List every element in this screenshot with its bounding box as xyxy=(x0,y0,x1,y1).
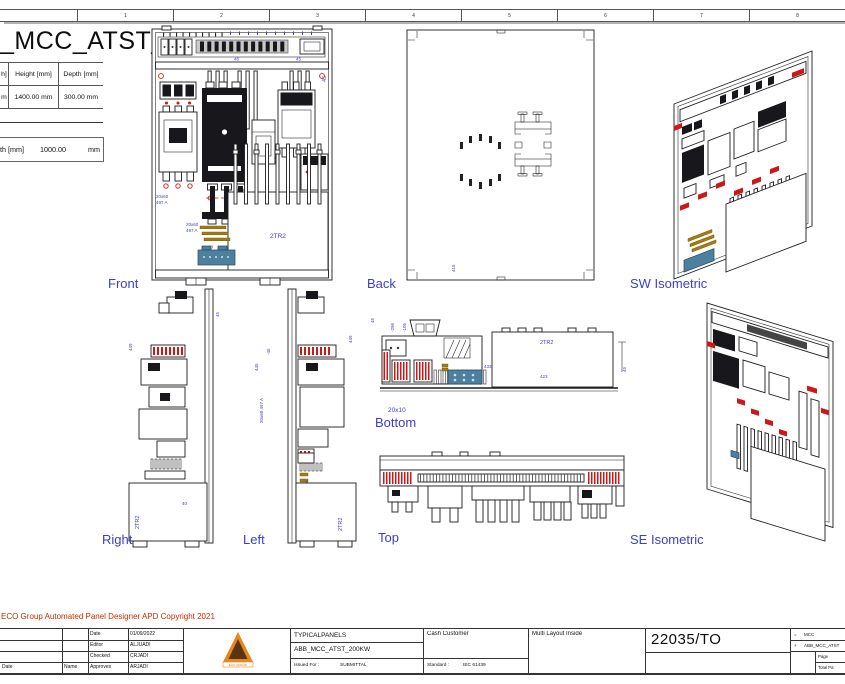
bottom-view-drawing: -296 -105 -274 -204 433 2TR2 423 xyxy=(372,312,644,427)
rev-name-header: Name xyxy=(64,662,86,673)
bottom-view-label: Bottom xyxy=(375,415,416,430)
svg-text:2TR2: 2TR2 xyxy=(270,233,286,240)
width-input-value[interactable]: 1000.00 xyxy=(38,145,80,154)
signoff-approved-value: ARJADI xyxy=(130,662,182,673)
signoff-approved-label: Approves xyxy=(90,662,126,673)
circuit-breaker xyxy=(159,106,197,188)
page-label: Page xyxy=(818,651,845,662)
svg-text:415: 415 xyxy=(451,264,456,272)
ruler-shadow xyxy=(4,22,845,24)
layout-note: Multi Layout Inside xyxy=(532,631,642,637)
ruler-cell: 3 xyxy=(270,10,366,21)
se-isometric-label: SE Isometric xyxy=(630,532,704,547)
right-cabinet-box xyxy=(129,483,207,541)
bottom-view-sublabel: 20x10 xyxy=(388,407,406,414)
svg-text:45: 45 xyxy=(215,311,220,317)
sheet-ruler: 1 2 3 4 5 6 7 8 xyxy=(0,9,845,22)
ruler-cell: 2 xyxy=(174,10,270,21)
dims-col1-value: m xyxy=(0,86,9,108)
svg-text:445: 445 xyxy=(254,363,259,371)
svg-text:46: 46 xyxy=(234,57,240,62)
width-input[interactable]: th [mm] 1000.00 mm xyxy=(0,137,104,162)
svg-text:45: 45 xyxy=(622,366,627,372)
ruler-cell: 4 xyxy=(366,10,462,21)
drawing-number: 22035/TO xyxy=(651,631,787,648)
dims-col3-header: Depth [mm] xyxy=(59,63,103,86)
svg-text:2TR2: 2TR2 xyxy=(540,340,553,346)
panel-dimensions-table: h] Height [mm] Depth [mm] m 1400.00 mm 3… xyxy=(0,62,103,109)
ref-function-symbol: = xyxy=(794,629,804,640)
busbar-comb xyxy=(233,144,322,204)
svg-text:20x60: 20x60 xyxy=(156,194,169,199)
header-divider xyxy=(0,122,103,123)
front-view-drawing: 46 45 45 xyxy=(150,26,335,288)
drawing-sheet: 1 2 3 4 5 6 7 8 _MCC_ATST_200KW h] Heigh… xyxy=(0,0,845,684)
signoff-editor-label: Editor xyxy=(90,640,126,651)
ruler-cell: 8 xyxy=(750,10,845,21)
svg-text:423: 423 xyxy=(540,374,548,379)
company-logo: ECO GROUP xyxy=(220,631,256,671)
svg-text:2TR2: 2TR2 xyxy=(135,516,141,529)
left-view-label: Left xyxy=(243,532,265,547)
ruler-cell: 6 xyxy=(558,10,654,21)
panel-name: ABB_MCC_ATST_200KW xyxy=(294,642,420,658)
customer-name: Cash Customer xyxy=(427,631,523,637)
svg-text:433: 433 xyxy=(484,364,492,369)
signoff-editor-value: ALJUADI xyxy=(130,640,182,651)
project-name: TYPICALPANELS xyxy=(294,629,420,642)
dims-col3-value: 300.00 mm xyxy=(59,86,103,108)
ref-location-symbol: + xyxy=(794,640,804,651)
signoff-checked-value: CRJADI xyxy=(130,651,182,662)
top-view-drawing xyxy=(372,450,644,532)
svg-text:20x60 497 A: 20x60 497 A xyxy=(259,398,264,423)
back-view-drawing: 415 xyxy=(403,26,598,288)
logo-caption: ECO GROUP xyxy=(229,663,247,667)
standard-value: IEC 61439 xyxy=(463,658,523,673)
signoff-date-label: Date xyxy=(90,629,126,640)
svg-text:20x60: 20x60 xyxy=(186,222,199,227)
svg-text:-296: -296 xyxy=(390,322,395,332)
svg-text:497 A: 497 A xyxy=(156,200,168,205)
copyright-text: ECO Group Automated Panel Designer APD C… xyxy=(1,612,215,621)
svg-text:449: 449 xyxy=(348,335,353,343)
svg-text:45: 45 xyxy=(322,76,328,82)
svg-text:-45: -45 xyxy=(266,348,271,355)
ruler-cell xyxy=(0,10,78,21)
ruler-cell: 5 xyxy=(462,10,558,21)
se-isometric-drawing xyxy=(695,287,845,549)
right-view-label: Right xyxy=(102,532,132,547)
ref-location-value: ABB_MCC_ATST xyxy=(804,640,845,651)
dims-col1-header: h] xyxy=(0,63,9,86)
signoff-date-value: 01/09/2022 xyxy=(130,629,182,640)
top-hanging-components xyxy=(388,486,624,522)
svg-text:449: 449 xyxy=(128,343,133,351)
contactor-b xyxy=(301,154,328,190)
blue-device-bottom xyxy=(448,370,482,384)
width-input-label: th [mm] xyxy=(0,145,38,154)
copper-busbars xyxy=(200,226,230,241)
left-cabinet-box xyxy=(296,483,356,541)
ref-function-value: MCC xyxy=(804,629,844,640)
main-contactor xyxy=(202,82,247,182)
svg-text:40: 40 xyxy=(182,501,188,506)
issued-for-value: SUBMITTAL xyxy=(340,658,420,673)
dims-col2-value: 1400.00 mm xyxy=(9,86,59,108)
dims-col2-header: Height [mm] xyxy=(9,63,59,86)
svg-text:497 A: 497 A xyxy=(186,228,198,233)
ruler-cell: 7 xyxy=(654,10,750,21)
svg-text:-105: -105 xyxy=(402,322,407,332)
title-block: Date Name Date 01/09/2022 Editor ALJUADI… xyxy=(0,628,845,675)
sw-isometric-drawing xyxy=(660,26,845,288)
rev-date-header: Date xyxy=(2,662,60,673)
top-view-label: Top xyxy=(378,530,399,545)
signoff-checked-label: Checked xyxy=(90,651,126,662)
ruler-cell: 1 xyxy=(78,10,174,21)
total-pages-label: Total Pa xyxy=(818,662,845,673)
width-input-unit: mm xyxy=(80,145,103,154)
svg-text:45: 45 xyxy=(296,57,302,62)
svg-text:2TR2: 2TR2 xyxy=(338,518,344,531)
right-view-drawing: 45 449 2TR2 40 xyxy=(118,287,228,549)
left-view-drawing: 445 -45 20x60 497 A 45 20x60 497 A 449 2… xyxy=(250,287,380,549)
